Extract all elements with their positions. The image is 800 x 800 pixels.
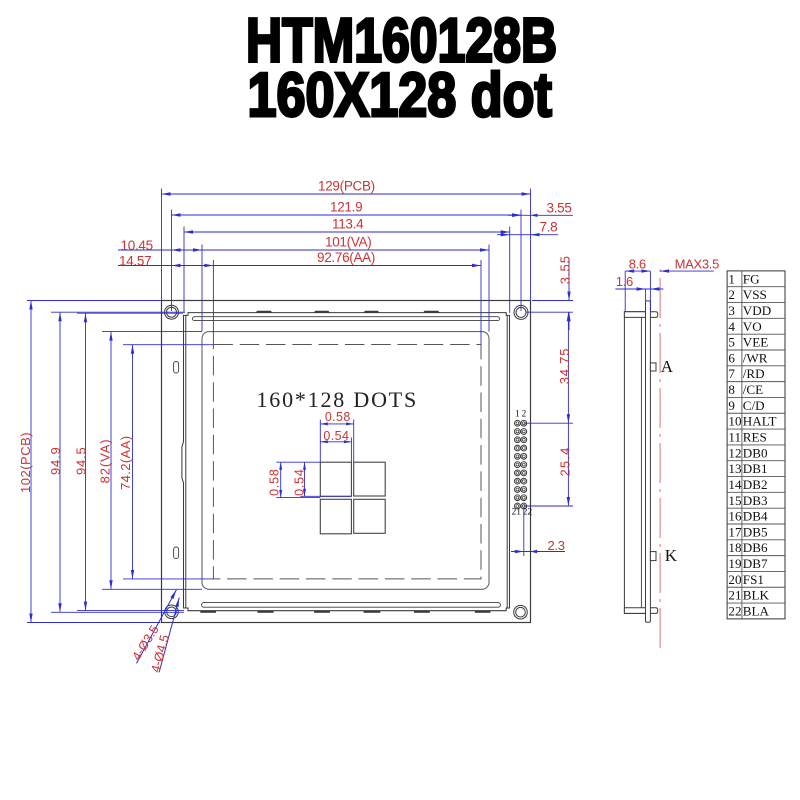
svg-text:0.54: 0.54 (292, 468, 306, 496)
svg-text:10.45: 10.45 (121, 238, 153, 253)
svg-text:17: 17 (728, 524, 742, 539)
svg-text:14: 14 (728, 477, 742, 492)
svg-text:14.57: 14.57 (119, 253, 151, 268)
svg-text:5: 5 (728, 335, 735, 350)
svg-text:DB6: DB6 (743, 540, 768, 555)
svg-text:12: 12 (728, 445, 741, 460)
svg-text:C/D: C/D (743, 398, 765, 413)
svg-text:13: 13 (728, 461, 742, 476)
svg-text:VSS: VSS (743, 287, 767, 302)
svg-text:11: 11 (728, 429, 741, 444)
svg-text:FG: FG (743, 271, 760, 286)
svg-text:HALT: HALT (743, 414, 777, 429)
svg-text:2: 2 (728, 287, 735, 302)
svg-text:21: 21 (511, 508, 521, 518)
svg-text:3.55: 3.55 (557, 255, 572, 284)
svg-text:VO: VO (743, 319, 762, 334)
svg-text:DB7: DB7 (743, 556, 768, 571)
svg-text:22: 22 (728, 603, 741, 618)
svg-text:102(PCB): 102(PCB) (18, 432, 33, 493)
svg-text:BLA: BLA (743, 603, 770, 618)
svg-text:2.3: 2.3 (548, 538, 565, 553)
svg-text:DB2: DB2 (743, 477, 768, 492)
svg-text:15: 15 (728, 493, 742, 508)
svg-text:FS1: FS1 (743, 572, 764, 587)
svg-text:21: 21 (728, 588, 741, 603)
svg-text:9: 9 (728, 398, 735, 413)
svg-text:3.55: 3.55 (547, 201, 572, 216)
svg-text:DB1: DB1 (743, 461, 768, 476)
svg-text:94.5: 94.5 (73, 446, 88, 475)
svg-text:7.8: 7.8 (540, 220, 558, 235)
svg-text:0.54: 0.54 (323, 429, 349, 443)
svg-text:/RD: /RD (743, 366, 765, 381)
svg-text:0.58: 0.58 (325, 410, 351, 424)
svg-text:18: 18 (728, 540, 742, 555)
svg-text:K: K (665, 546, 678, 565)
svg-text:3: 3 (728, 303, 735, 318)
svg-text:BLK: BLK (743, 588, 770, 603)
svg-text:8: 8 (728, 382, 735, 397)
svg-text:DB0: DB0 (743, 445, 768, 460)
svg-text:74.2(AA): 74.2(AA) (118, 435, 133, 490)
svg-text:/CE: /CE (743, 382, 763, 397)
svg-text:16: 16 (728, 509, 742, 524)
svg-text:121.9: 121.9 (330, 200, 362, 215)
svg-text:92.76(AA): 92.76(AA) (317, 250, 375, 265)
svg-text:VDD: VDD (743, 303, 771, 318)
svg-text:4: 4 (728, 319, 735, 334)
svg-text:160X128 dot: 160X128 dot (248, 61, 552, 130)
svg-text:101(VA): 101(VA) (325, 235, 371, 250)
svg-text:6: 6 (728, 350, 735, 365)
svg-text:25.4: 25.4 (557, 446, 572, 476)
svg-text:DB3: DB3 (743, 493, 768, 508)
svg-text:1: 1 (728, 271, 735, 286)
svg-text:RES: RES (743, 429, 767, 444)
svg-text:82(VA): 82(VA) (98, 438, 113, 483)
svg-text:MAX3.5: MAX3.5 (675, 257, 720, 272)
svg-text:0.58: 0.58 (268, 468, 282, 496)
svg-text:8.6: 8.6 (629, 257, 646, 272)
svg-text:113.4: 113.4 (332, 217, 364, 232)
svg-text:2: 2 (522, 410, 527, 420)
svg-text:/WR: /WR (743, 350, 768, 365)
svg-text:10: 10 (728, 414, 742, 429)
svg-text:VEE: VEE (743, 335, 768, 350)
svg-text:20: 20 (728, 572, 742, 587)
svg-text:1: 1 (515, 410, 520, 420)
svg-text:DB5: DB5 (743, 524, 768, 539)
svg-text:160*128 DOTS: 160*128 DOTS (257, 387, 419, 412)
svg-text:129(PCB): 129(PCB) (318, 179, 375, 194)
svg-text:1.6: 1.6 (616, 274, 633, 289)
svg-text:19: 19 (728, 556, 742, 571)
svg-text:A: A (661, 357, 674, 376)
svg-text:DB4: DB4 (743, 509, 768, 524)
svg-text:34.75: 34.75 (557, 348, 572, 385)
svg-text:7: 7 (728, 366, 735, 381)
svg-text:94.9: 94.9 (48, 446, 63, 475)
